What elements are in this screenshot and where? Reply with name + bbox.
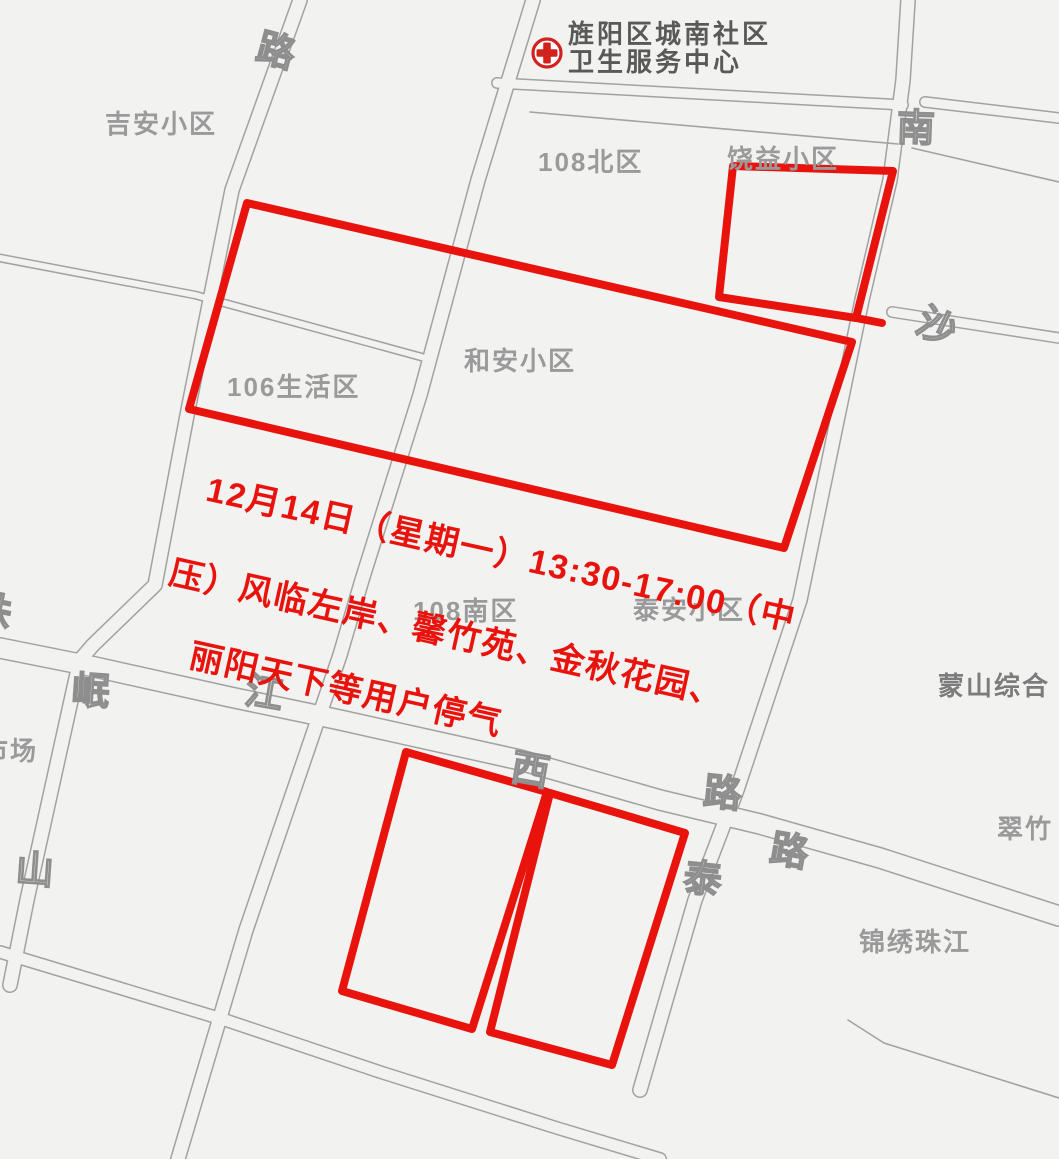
city-map: 吉安小区108北区饶益小区和安小区106生活区108南区泰安小区蒙山综合翠竹锦绣… [0,0,1059,1159]
road-label-lu-center: 路 [701,760,745,819]
road-label-shan: 山 [14,838,56,896]
health-center-name-line2: 卫生服务中心 [568,48,771,76]
area-label-hean-xiaoqu: 和安小区 [464,341,576,378]
road-label-tai: 泰 [681,846,725,905]
area-label-jinxiu-zhujiang: 锦绣珠江 [859,922,971,959]
outage-zone-southwest [342,752,547,1029]
hospital-red-cross-icon [530,36,564,70]
area-label-jian-xiaoqu: 吉安小区 [105,104,217,141]
area-label-cuizhu: 翠竹 [997,809,1053,846]
outage-zone-northeast-tail [856,318,882,323]
area-label-mengshan-zonghe: 蒙山综合 [938,666,1050,703]
area-label-shichang-partial: 市场 [0,731,38,768]
road-label-nan: 南 [896,96,936,152]
road-south-horizontal [0,952,660,1159]
block-line-108north-top [530,112,898,144]
block-line-northeast [912,148,1059,182]
health-center-name-line1: 旌阳区城南社区 [568,20,771,48]
road-label-min: 岷 [70,659,112,717]
block-line-southeast [848,1020,1059,1098]
area-label-108-beiqu: 108北区 [538,142,643,179]
area-label-raoyi-xiaoqu: 饶益小区 [727,139,839,176]
road-health-center-front [497,83,903,105]
area-label-106-shenghuoqu: 106生活区 [227,367,360,404]
health-center-name: 旌阳区城南社区 卫生服务中心 [568,20,771,76]
